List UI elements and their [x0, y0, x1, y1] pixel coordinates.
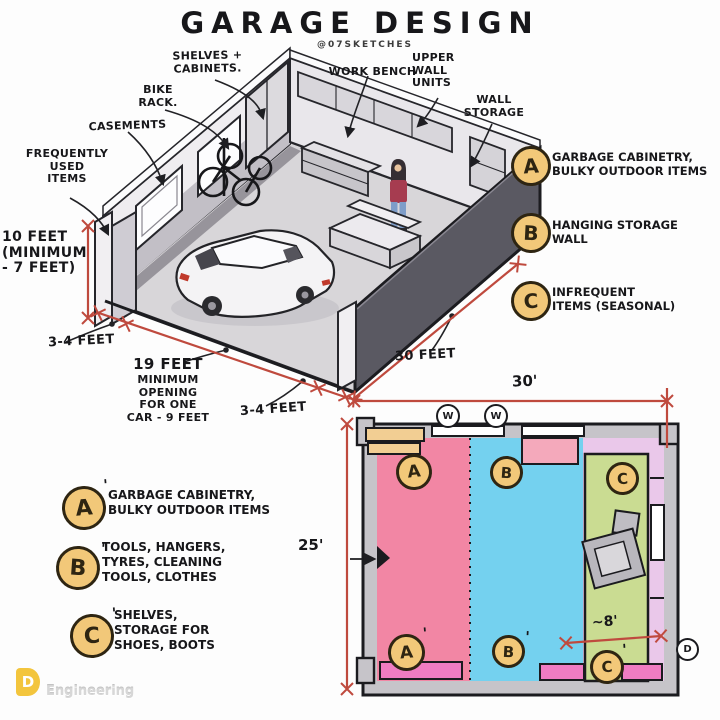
dim-opening-detail: MINIMUM OPENING FOR ONE CAR - 9 FEET — [108, 374, 228, 425]
cabinet-block — [366, 428, 424, 441]
watermark-logo: D — [16, 668, 40, 696]
dim-opening-title: 19 FEET — [108, 356, 228, 373]
label-bike-rack: BIKE RACK. — [128, 84, 188, 109]
badge-letter: A — [74, 495, 93, 521]
legend-text-c: INFREQUENT ITEMS (SEASONAL) — [552, 285, 717, 314]
legend-text-b-prime: TOOLS, HANGERS, TYRES, CLEANING TOOLS, C… — [102, 540, 282, 585]
dim-height-10-feet: 10 FEET (MINIMUM - 7 FEET) — [2, 230, 86, 277]
storage-block — [540, 664, 584, 680]
badge-letter: A — [399, 642, 414, 663]
watermark-text: Engineering — [46, 684, 134, 699]
label-shelves-cabinets: SHELVES + CABINETS. — [150, 49, 265, 76]
workbench-block — [522, 438, 578, 464]
door-marker: D — [676, 638, 699, 661]
legend-text-a: GARBAGE CABINETRY, BULKY OUTDOOR ITEMS — [552, 150, 717, 179]
badge-letter: A — [522, 153, 539, 178]
cabinet-block — [368, 443, 420, 454]
garage-design-poster: GARAGE DESIGN @07SKETCHES SHELVES + CABI… — [0, 0, 720, 720]
storage-block — [622, 664, 662, 680]
right-wall-shelf — [651, 505, 664, 560]
label-work-bench: WORK BENCH — [325, 66, 420, 79]
label-wall-storage: WALL STORAGE — [463, 94, 525, 119]
legend-text-b: HANGING STORAGE WALL — [552, 218, 717, 247]
plan-zone-c-dim: ~8' — [591, 613, 618, 631]
label-upper-wall-units: UPPER WALL UNITS — [412, 52, 472, 90]
badge-letter: B — [502, 642, 514, 661]
badge-letter: A — [406, 461, 421, 482]
badge-prime: ' — [525, 628, 531, 646]
window-marker: W — [484, 404, 508, 428]
badge-letter: B — [69, 555, 87, 581]
plan-height-dim: 25' — [298, 536, 323, 554]
credit-handle: @07SKETCHES — [290, 40, 440, 50]
legend-text-c-prime: SHELVES, STORAGE FOR SHOES, BOOTS — [114, 608, 294, 653]
page-title: GARAGE DESIGN — [150, 6, 570, 40]
label-frequently-used-items: FREQUENTLY USED ITEMS — [22, 148, 112, 186]
badge-letter: C — [616, 469, 628, 488]
badge-letter: B — [500, 463, 513, 482]
plan-width-dim: 30' — [512, 372, 538, 391]
badge-letter: C — [601, 658, 613, 677]
badge-letter: B — [523, 221, 539, 246]
window-marker: W — [436, 404, 460, 428]
legend-text-a-prime: GARBAGE CABINETRY, BULKY OUTDOOR ITEMS — [108, 488, 288, 518]
badge-letter: C — [523, 289, 539, 314]
badge-letter: C — [83, 623, 101, 649]
